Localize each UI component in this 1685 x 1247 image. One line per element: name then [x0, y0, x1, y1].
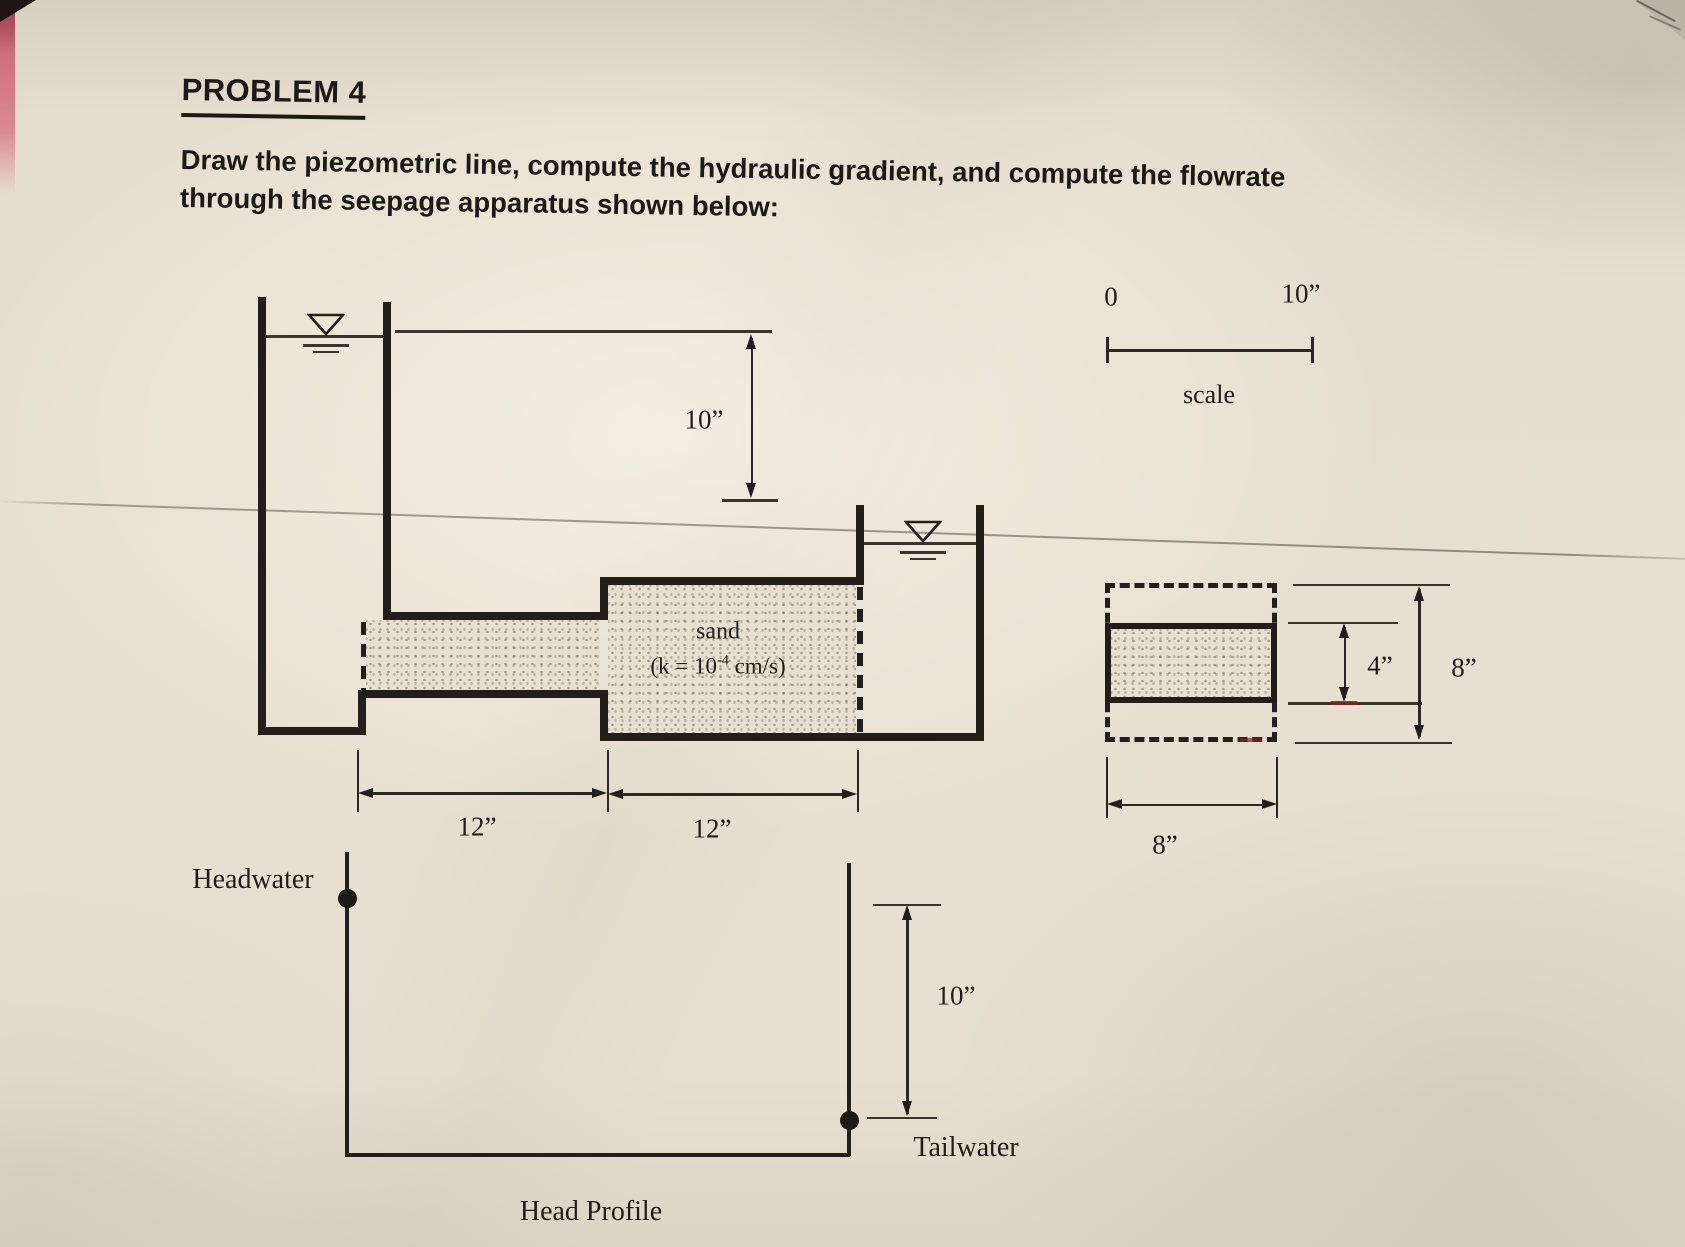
arrowhead-left-icon — [608, 789, 623, 799]
scale-zero-label: 0 — [1104, 282, 1118, 313]
scale-bar-end-tick — [1311, 337, 1314, 363]
dim-tick — [857, 750, 860, 812]
scale-bar-line — [1107, 349, 1312, 352]
dim-tick — [357, 750, 360, 812]
water-level-underline — [910, 558, 936, 561]
permeability-suffix: cm/s) — [729, 653, 786, 678]
dim-tick — [607, 750, 610, 812]
scale-max-label: 10” — [1282, 279, 1321, 310]
water-level-underline — [303, 344, 349, 347]
extension-line — [1293, 584, 1450, 587]
head-profile-caption: Head Profile — [520, 1196, 662, 1228]
arrowhead-up-icon — [746, 334, 756, 349]
arrowhead-left-icon — [358, 788, 373, 798]
arrowhead-right-icon — [592, 788, 607, 798]
photographed-problem-sheet: PROBLEM 4 Draw the piezometric line, com… — [0, 0, 1685, 1247]
sand-label: sand — [696, 619, 740, 646]
headwater-point — [338, 889, 357, 908]
headwater-bottom-wall — [258, 727, 366, 735]
profile-drop-dim-label: 10” — [937, 981, 976, 1012]
extension-line — [1295, 742, 1452, 745]
pink-paper-edge-artifact — [0, 0, 15, 195]
head-profile-bottom-line — [345, 1153, 850, 1157]
arrowhead-up-icon — [902, 905, 912, 920]
arrowhead-left-icon — [1107, 799, 1122, 809]
paper-crease-line — [0, 500, 1685, 560]
arrowhead-down-icon — [746, 483, 756, 498]
xs-outer-height-label: 8” — [1451, 653, 1476, 684]
sand-interface-dashed-left — [361, 622, 367, 690]
sand-interface-dashed-right — [857, 587, 863, 733]
water-level-underline — [900, 551, 946, 554]
tailwater-point — [840, 1111, 859, 1130]
xs-width-label: 8” — [1152, 830, 1177, 861]
dim-8-vertical-line — [1418, 589, 1421, 737]
scale-caption: scale — [1183, 380, 1235, 410]
large-pipe-top-wall — [600, 577, 864, 585]
sand-fill-small-pipe — [366, 620, 600, 690]
arrowhead-down-icon — [1339, 687, 1349, 702]
large-pipe-and-tailwater-bottom-wall — [600, 733, 984, 741]
small-pipe-top-wall — [383, 612, 608, 620]
tailwater-level-extension-line — [722, 499, 778, 502]
gray-corner-artifact — [1553, 0, 1685, 40]
headwater-label: Headwater — [192, 864, 313, 896]
headwater-level-extension-line — [395, 330, 772, 333]
arrowhead-right-icon — [1262, 799, 1277, 809]
water-level-underline — [313, 351, 339, 354]
profile-drop-dim-line — [906, 909, 909, 1114]
dim-12-right-label: 12” — [693, 814, 732, 845]
water-level-icon — [307, 313, 345, 336]
dim-8-width-line — [1120, 804, 1263, 807]
inner-pipe-solid-outline — [1105, 623, 1277, 703]
arrowhead-up-icon — [1414, 586, 1424, 601]
header: PROBLEM 4 Draw the piezometric line, com… — [180, 72, 1287, 234]
page-title: PROBLEM 4 — [181, 72, 366, 120]
permeability-exponent: -4 — [717, 653, 729, 669]
small-pipe-bottom-wall — [358, 690, 608, 698]
dark-corner-artifact — [0, 0, 36, 22]
permeability-label: (k = 10-4 cm/s) — [650, 653, 785, 680]
arrowhead-down-icon — [1414, 725, 1424, 740]
tailwater-left-wall — [856, 505, 864, 585]
head-drop-dim-label: 10” — [685, 405, 724, 436]
scale-bar-end-tick — [1106, 337, 1109, 363]
water-level-icon — [904, 520, 942, 543]
tailwater-label: Tailwater — [913, 1132, 1018, 1164]
xs-inner-height-label: 4” — [1367, 651, 1392, 682]
arrowhead-up-icon — [1339, 623, 1349, 638]
permeability-prefix: (k = 10 — [650, 653, 717, 678]
arrowhead-down-icon — [902, 1101, 912, 1116]
reservoir-step-wall — [358, 690, 366, 735]
headwater-right-wall — [383, 302, 391, 620]
head-drop-dim-line — [751, 338, 754, 490]
red-pen-mark — [1240, 738, 1262, 742]
dim-12-left-line — [372, 792, 594, 795]
dim-12-left-label: 12” — [458, 812, 497, 843]
headwater-left-wall — [258, 297, 266, 735]
extension-line — [867, 1117, 937, 1120]
tailwater-right-wall — [976, 505, 984, 741]
arrowhead-right-icon — [842, 789, 857, 799]
dim-12-right-line — [622, 793, 844, 796]
instructions: Draw the piezometric line, compute the h… — [180, 141, 1286, 234]
